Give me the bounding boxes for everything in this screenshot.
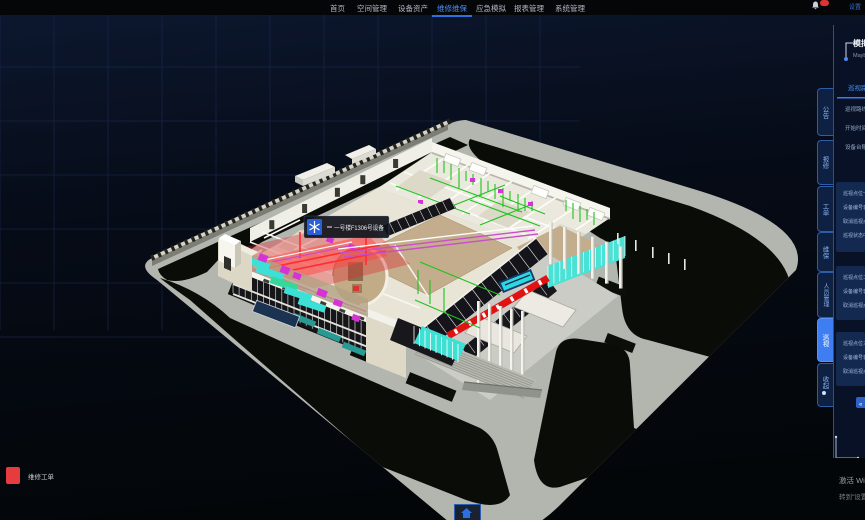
svg-text:Maybe: Maybe [853, 53, 865, 59]
svg-text:巡视点位一: 巡视点位一 [843, 190, 865, 197]
svg-text:设备编号表: 设备编号表 [843, 288, 865, 295]
svg-text:模拟巡检: 模拟巡检 [853, 38, 865, 48]
svg-text:设备编号表: 设备编号表 [843, 204, 865, 211]
svg-text:设备台账信息: 设备台账信息 [845, 143, 865, 151]
svg-text:巡视路线: 巡视路线 [848, 83, 865, 92]
svg-text:巡视点位三: 巡视点位三 [843, 340, 865, 347]
svg-text:设备编号表: 设备编号表 [843, 354, 865, 361]
svg-text:取消巡视点: 取消巡视点 [843, 302, 865, 309]
svg-text:巡视路线规划: 巡视路线规划 [845, 105, 865, 113]
svg-text:一号楼F1306号设备: 一号楼F1306号设备 [334, 224, 384, 232]
svg-text:巡视点位二: 巡视点位二 [843, 274, 865, 281]
svg-text:开始时间设置: 开始时间设置 [845, 124, 865, 132]
svg-text:巡视状态中: 巡视状态中 [843, 232, 865, 239]
svg-text:取消巡视点: 取消巡视点 [843, 218, 865, 225]
svg-text:取消巡视点: 取消巡视点 [843, 368, 865, 375]
